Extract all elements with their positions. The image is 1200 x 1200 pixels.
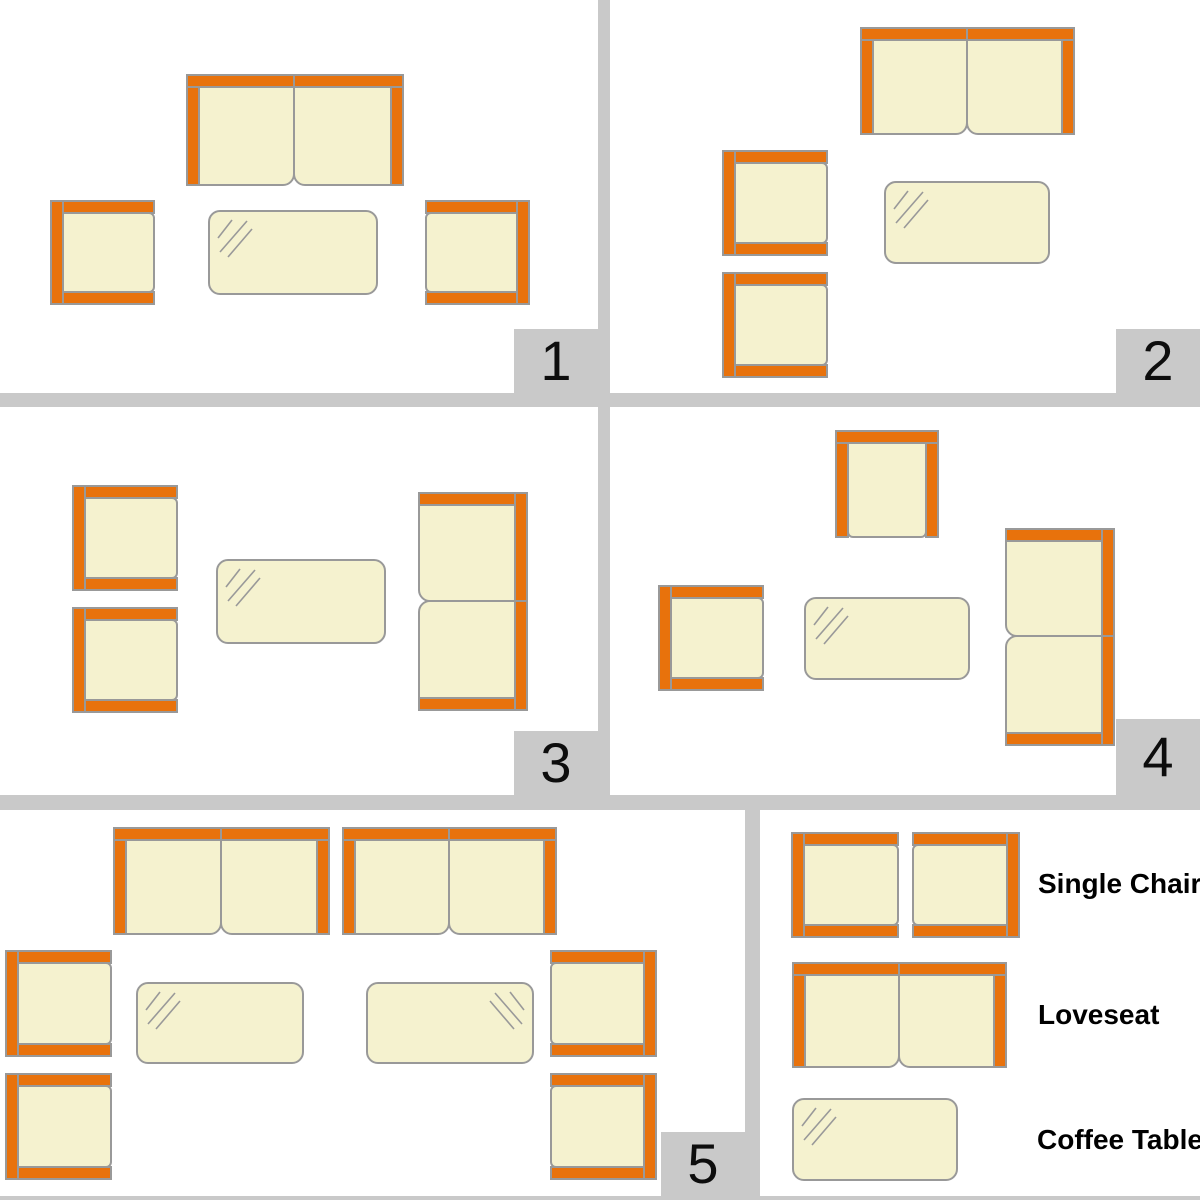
loveseat bbox=[1005, 528, 1115, 746]
panel-divider bbox=[0, 795, 1200, 810]
glass-shine-icon bbox=[798, 1104, 842, 1148]
legend-panel: Single Chair Loveseat Coffee Table bbox=[760, 810, 1200, 1196]
chair-cushion bbox=[734, 284, 828, 366]
single-chair bbox=[72, 607, 178, 713]
legend-label-single-chair: Single Chair bbox=[1038, 868, 1200, 900]
single-chair bbox=[550, 950, 657, 1057]
legend-label-coffee-table: Coffee Table bbox=[1037, 1124, 1200, 1156]
chair-arm bbox=[734, 364, 828, 378]
single-chair bbox=[722, 272, 828, 378]
glass-shine-icon bbox=[484, 988, 528, 1032]
chair-arm bbox=[734, 242, 828, 256]
loveseat-cushion bbox=[448, 839, 545, 935]
loveseat-cushion bbox=[966, 39, 1063, 135]
glass-shine-icon bbox=[890, 187, 934, 231]
coffee-table bbox=[216, 559, 386, 644]
panel-divider bbox=[0, 1196, 1200, 1200]
single-chair bbox=[50, 200, 155, 305]
single-chair bbox=[425, 200, 530, 305]
loveseat-back bbox=[1101, 528, 1115, 637]
loveseat bbox=[186, 74, 404, 186]
chair-arm bbox=[550, 1043, 645, 1057]
panel-number-badge: 5 bbox=[661, 1132, 745, 1196]
glass-shine-icon bbox=[222, 565, 266, 609]
panel-number-badge: 2 bbox=[1116, 329, 1200, 393]
loveseat-arm bbox=[316, 839, 330, 935]
chair-cushion bbox=[62, 212, 155, 293]
chair-cushion bbox=[912, 844, 1008, 926]
loveseat-arm bbox=[1005, 732, 1103, 746]
single-chair bbox=[835, 430, 939, 538]
glass-shine-icon bbox=[810, 603, 854, 647]
loveseat bbox=[418, 492, 528, 711]
loveseat-cushion bbox=[198, 86, 295, 186]
loveseat-arm bbox=[543, 839, 557, 935]
chair-arm bbox=[84, 577, 178, 591]
chair-cushion bbox=[734, 162, 828, 244]
chair-back bbox=[643, 950, 657, 1057]
coffee-table bbox=[792, 1098, 958, 1181]
chair-cushion bbox=[550, 962, 645, 1045]
loveseat-cushion bbox=[898, 974, 995, 1068]
loveseat bbox=[113, 827, 330, 935]
panel-number-badge: 3 bbox=[514, 731, 598, 795]
chair-cushion bbox=[670, 597, 764, 679]
loveseat-back bbox=[514, 492, 528, 602]
panel-number-badge: 4 bbox=[1116, 719, 1200, 795]
loveseat-cushion bbox=[872, 39, 968, 135]
loveseat-cushion bbox=[418, 600, 516, 699]
single-chair bbox=[5, 1073, 112, 1180]
loveseat-cushion bbox=[354, 839, 450, 935]
single-chair bbox=[550, 1073, 657, 1180]
chair-back bbox=[1006, 832, 1020, 938]
single-chair bbox=[912, 832, 1020, 938]
loveseat-back bbox=[514, 600, 528, 711]
loveseat-back bbox=[1101, 635, 1115, 746]
legend-label-loveseat: Loveseat bbox=[1038, 999, 1159, 1031]
chair-arm bbox=[17, 1043, 112, 1057]
glass-shine-icon bbox=[214, 216, 258, 260]
chair-cushion bbox=[803, 844, 899, 926]
arrangement-panel-1: 1 bbox=[0, 0, 598, 393]
single-chair bbox=[791, 832, 899, 938]
arrangement-panel-3: 3 bbox=[0, 407, 598, 795]
chair-cushion bbox=[84, 497, 178, 579]
single-chair bbox=[5, 950, 112, 1057]
chair-cushion bbox=[550, 1085, 645, 1168]
loveseat-arm bbox=[418, 697, 516, 711]
panel-divider bbox=[598, 407, 610, 795]
coffee-table bbox=[366, 982, 534, 1064]
chair-cushion bbox=[17, 962, 112, 1045]
arrangement-panel-5: 5 bbox=[0, 810, 745, 1196]
chair-cushion bbox=[17, 1085, 112, 1168]
coffee-table bbox=[136, 982, 304, 1064]
loveseat-cushion bbox=[804, 974, 900, 1068]
loveseat-cushion bbox=[220, 839, 318, 935]
chair-arm bbox=[17, 1166, 112, 1180]
loveseat-cushion bbox=[125, 839, 222, 935]
single-chair bbox=[658, 585, 764, 691]
chair-arm bbox=[62, 291, 155, 305]
chair-arm bbox=[670, 677, 764, 691]
chair-arm bbox=[550, 1166, 645, 1180]
loveseat-cushion bbox=[1005, 635, 1103, 734]
chair-arm bbox=[912, 924, 1008, 938]
coffee-table bbox=[208, 210, 378, 295]
loveseat bbox=[792, 962, 1007, 1068]
furniture-arrangement-diagram: 1 2 3 4 5 Single Chair Loveseat Coffee T… bbox=[0, 0, 1200, 1200]
chair-arm bbox=[803, 924, 899, 938]
arrangement-panel-2: 2 bbox=[610, 0, 1200, 393]
single-chair bbox=[722, 150, 828, 256]
loveseat-cushion bbox=[293, 86, 392, 186]
panel-divider bbox=[745, 810, 760, 1196]
panel-divider bbox=[0, 393, 1200, 407]
chair-arm bbox=[425, 291, 518, 305]
single-chair bbox=[72, 485, 178, 591]
chair-cushion bbox=[84, 619, 178, 701]
loveseat-cushion bbox=[1005, 540, 1103, 637]
loveseat bbox=[342, 827, 557, 935]
chair-back bbox=[516, 200, 530, 305]
coffee-table bbox=[884, 181, 1050, 264]
chair-arm bbox=[84, 699, 178, 713]
panel-number-badge: 1 bbox=[514, 329, 598, 393]
loveseat-arm bbox=[993, 974, 1007, 1068]
chair-cushion bbox=[425, 212, 518, 293]
loveseat-arm bbox=[390, 86, 404, 186]
panel-divider bbox=[598, 0, 610, 393]
coffee-table bbox=[804, 597, 970, 680]
chair-arm bbox=[925, 442, 939, 538]
loveseat bbox=[860, 27, 1075, 135]
chair-back bbox=[643, 1073, 657, 1180]
arrangement-panel-4: 4 bbox=[610, 407, 1200, 795]
glass-shine-icon bbox=[142, 988, 186, 1032]
loveseat-cushion bbox=[418, 504, 516, 602]
loveseat-arm bbox=[1061, 39, 1075, 135]
chair-cushion bbox=[847, 442, 927, 538]
